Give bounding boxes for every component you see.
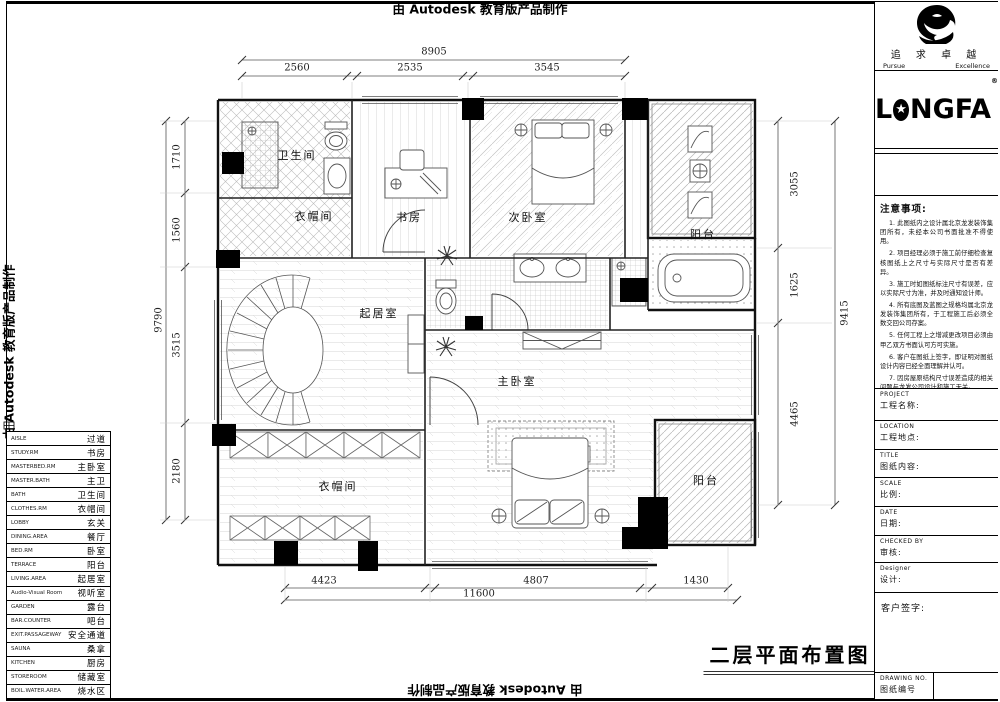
- legend-cn: 书房: [87, 447, 106, 459]
- legend-row: DINING.AREA餐厅: [7, 529, 110, 543]
- room-label-balcony-2: 阳台: [693, 472, 719, 488]
- dim-bottom-seg-1: 4423: [311, 576, 336, 587]
- note-item-1: 1. 此图纸内之设计属北京龙发装饰集团所有，未经本公司书面批准不得使用。: [880, 219, 993, 246]
- motto-excellence: Excellence: [955, 62, 990, 70]
- dim-bottom-seg-2: 4807: [523, 576, 548, 587]
- drawing-title: 二层平面布置图: [704, 639, 877, 675]
- field-scale-en: SCALE: [880, 480, 993, 487]
- registered-mark: ®: [991, 77, 998, 85]
- edu-banner-top: 由 Autodesk 教育版产品制作: [392, 0, 567, 18]
- room-legend-table: AISLE过道 STUDY.RM书房 MASTERBED.RM主卧室 MASTE…: [6, 431, 111, 699]
- legend-cn: 卧室: [87, 545, 106, 557]
- legend-cn: 主卧室: [77, 461, 106, 473]
- field-scale-cn: 比例:: [880, 489, 993, 500]
- field-date: DATE 日期:: [875, 506, 998, 535]
- note-item-2: 2. 项目经理必须于施工前仔细检查复核图纸上之尺寸与实际尺寸是否有差异。: [880, 249, 993, 276]
- room-label-living: 起居室: [360, 305, 399, 321]
- field-checked-by: CHECKED BY 审核:: [875, 535, 998, 562]
- legend-en: BED.RM: [11, 548, 33, 554]
- legend-cn: 厨房: [87, 657, 106, 669]
- legend-cn: 餐厅: [87, 531, 106, 543]
- field-designer: Designer 设计:: [875, 562, 998, 592]
- title-block: 追 求 卓 越 Pursue Excellence L★NGFA® 注意事项: …: [874, 2, 998, 699]
- field-location-cn: 工程地点:: [880, 432, 993, 443]
- dim-left-overall: 9790: [154, 307, 165, 332]
- room-label-study: 书房: [396, 209, 422, 225]
- dim-left-seg-3: 3515: [172, 332, 183, 357]
- blank-box: [875, 154, 998, 196]
- longfa-logo: L★NGFA®: [875, 71, 998, 148]
- legend-cn: 吧台: [87, 615, 106, 627]
- field-location-en: LOCATION: [880, 423, 993, 430]
- dim-bottom-overall: 11600: [463, 589, 495, 600]
- field-title-en: TITLE: [880, 452, 993, 459]
- legend-cn: 卫生间: [77, 489, 106, 501]
- dim-top-overall: 8905: [421, 47, 446, 58]
- field-title: TITLE 图纸内容:: [875, 449, 998, 477]
- room-label-cloak-1: 衣帽间: [295, 208, 334, 224]
- legend-en: LOBBY: [11, 520, 29, 526]
- longfa-letters-rest: NGFA: [910, 94, 991, 125]
- legend-row: GARDEN露台: [7, 600, 110, 614]
- dim-top-seg-1: 2560: [284, 63, 309, 74]
- legend-en: EXIT.PASSAGEWAY: [11, 632, 61, 638]
- dim-left-seg-4: 2180: [172, 458, 183, 483]
- legend-cn: 衣帽间: [77, 503, 106, 515]
- legend-cn: 储藏室: [77, 671, 106, 683]
- field-project-cn: 工程名称:: [880, 400, 993, 411]
- dim-top-seg-3: 3545: [534, 63, 559, 74]
- dim-top-seg-2: 2535: [397, 63, 422, 74]
- notes-title: 注意事项:: [880, 201, 993, 215]
- legend-cn: 主卫: [87, 475, 106, 487]
- legend-en: CLOTHES.RM: [11, 506, 47, 512]
- legend-en: AISLE: [11, 436, 26, 442]
- field-date-en: DATE: [880, 509, 993, 516]
- field-designer-en: Designer: [880, 565, 993, 572]
- company-motto-cn: 追 求 卓 越: [891, 46, 983, 61]
- dim-bottom-seg-3: 1430: [683, 576, 708, 587]
- legend-row: LOBBY玄关: [7, 515, 110, 529]
- legend-en: GARDEN: [11, 604, 35, 610]
- dim-right-seg-1: 3055: [790, 171, 801, 196]
- legend-en: TERRACE: [11, 562, 36, 568]
- legend-en: Audio-Visual Room: [11, 590, 62, 596]
- note-item-7: 7. 因房屋原结构尺寸误差造成的相关问题与龙发公司设计和施工无关。: [880, 374, 993, 388]
- legend-en: DINING.AREA: [11, 534, 48, 540]
- floor-plan-drawing: [0, 0, 1000, 702]
- note-item-6: 6. 客户在图纸上签字，即证明对图纸设计内容已经全面理解并认可。: [880, 353, 993, 371]
- edu-banner-left: 由 Autodesk 教育版产品制作: [0, 264, 18, 439]
- field-date-cn: 日期:: [880, 518, 993, 529]
- legend-cn: 起居室: [77, 573, 106, 585]
- legend-row: TERRACE阳台: [7, 557, 110, 571]
- dim-right-seg-2: 1625: [790, 272, 801, 297]
- longfa-letter-l: L: [875, 94, 892, 125]
- legend-en: KITCHEN: [11, 660, 35, 666]
- legend-row: STOREROOM储藏室: [7, 670, 110, 684]
- room-label-bedroom-2: 次卧室: [509, 209, 548, 225]
- edu-banner-bottom: 由 Autodesk 教育版产品制作: [407, 682, 582, 701]
- field-project: PROJECT 工程名称:: [875, 388, 998, 420]
- dim-right-overall: 9415: [840, 300, 851, 325]
- notes-box: 注意事项: 1. 此图纸内之设计属北京龙发装饰集团所有，未经本公司书面批准不得使…: [875, 196, 998, 388]
- field-location: LOCATION 工程地点:: [875, 420, 998, 449]
- legend-cn: 过道: [87, 433, 106, 445]
- field-checked-cn: 审核:: [880, 547, 993, 558]
- client-signature-label: 客户签字:: [881, 601, 992, 614]
- legend-row: LIVING.AREA起居室: [7, 571, 110, 585]
- legend-row: BAR.COUNTER吧台: [7, 614, 110, 628]
- legend-en: LIVING.AREA: [11, 576, 46, 582]
- field-title-cn: 图纸内容:: [880, 461, 993, 472]
- legend-cn: 烧水区: [77, 685, 106, 697]
- drawing-no-cn: 图纸编号: [880, 684, 993, 695]
- note-item-5: 5. 任何工程上之增减更改项目必须由甲乙双方书面认可方可实施。: [880, 331, 993, 349]
- legend-row: Audio-Visual Room视听室: [7, 586, 110, 600]
- legend-row: STUDY.RM书房: [7, 445, 110, 459]
- room-label-bath: 卫生间: [278, 147, 317, 163]
- note-item-3: 3. 施工时如图纸标注尺寸有误差，应以实际尺寸为准，并及时通知设计师。: [880, 280, 993, 298]
- legend-cn: 视听室: [77, 587, 106, 599]
- legend-en: BOIL.WATER.AREA: [11, 688, 61, 694]
- legend-en: BATH: [11, 492, 26, 498]
- legend-row: SAUNA桑拿: [7, 642, 110, 656]
- legend-en: SAUNA: [11, 646, 30, 652]
- legend-row: AISLE过道: [7, 432, 110, 445]
- legend-row: BATH卫生间: [7, 487, 110, 501]
- field-designer-cn: 设计:: [880, 574, 993, 585]
- legend-row: MASTERBED.RM主卧室: [7, 459, 110, 473]
- room-label-cloak-2: 衣帽间: [319, 478, 358, 494]
- drawing-no-en: DRAWING NO.: [880, 675, 993, 682]
- legend-en: MASTERBED.RM: [11, 464, 55, 470]
- legend-en: MASTER.BATH: [11, 478, 50, 484]
- client-signature-box: 客户签字:: [875, 592, 998, 672]
- legend-row: BED.RM卧室: [7, 543, 110, 557]
- legend-cn: 露台: [87, 601, 106, 613]
- longfa-logo-box: L★NGFA®: [875, 70, 998, 148]
- legend-cn: 桑拿: [87, 643, 106, 655]
- longfa-star-icon: ★: [893, 99, 909, 121]
- legend-cn: 安全通道: [68, 629, 106, 641]
- legend-row: MASTER.BATH主卫: [7, 473, 110, 487]
- field-project-en: PROJECT: [880, 391, 993, 398]
- legend-row: KITCHEN厨房: [7, 656, 110, 670]
- room-label-master-bed: 主卧室: [498, 373, 537, 389]
- dragon-logo-icon: [912, 4, 962, 44]
- drawing-no-box: DRAWING NO. 图纸编号: [875, 672, 998, 699]
- field-checked-en: CHECKED BY: [880, 538, 993, 545]
- legend-cn: 玄关: [87, 517, 106, 529]
- note-item-4: 4. 所有底图及蓝图之规格均属北京龙发装饰集团所有，于工程施工后必须全数交回公司…: [880, 301, 993, 328]
- dim-right-seg-3: 4465: [790, 401, 801, 426]
- drawing-no-divider: [933, 673, 934, 699]
- legend-cn: 阳台: [87, 559, 106, 571]
- dim-left-seg-2: 1560: [172, 217, 183, 242]
- legend-en: STUDY.RM: [11, 450, 38, 456]
- legend-row: EXIT.PASSAGEWAY安全通道: [7, 628, 110, 642]
- legend-row: CLOTHES.RM衣帽间: [7, 501, 110, 515]
- legend-en: BAR.COUNTER: [11, 618, 51, 624]
- field-scale: SCALE 比例:: [875, 477, 998, 506]
- motto-pursue: Pursue: [883, 62, 905, 70]
- legend-en: STOREROOM: [11, 674, 47, 680]
- legend-row: BOIL.WATER.AREA烧水区: [7, 684, 110, 698]
- room-label-balcony-1: 阳台: [690, 226, 716, 242]
- company-seal-box: 追 求 卓 越 Pursue Excellence: [875, 2, 998, 70]
- dim-left-seg-1: 1710: [172, 144, 183, 169]
